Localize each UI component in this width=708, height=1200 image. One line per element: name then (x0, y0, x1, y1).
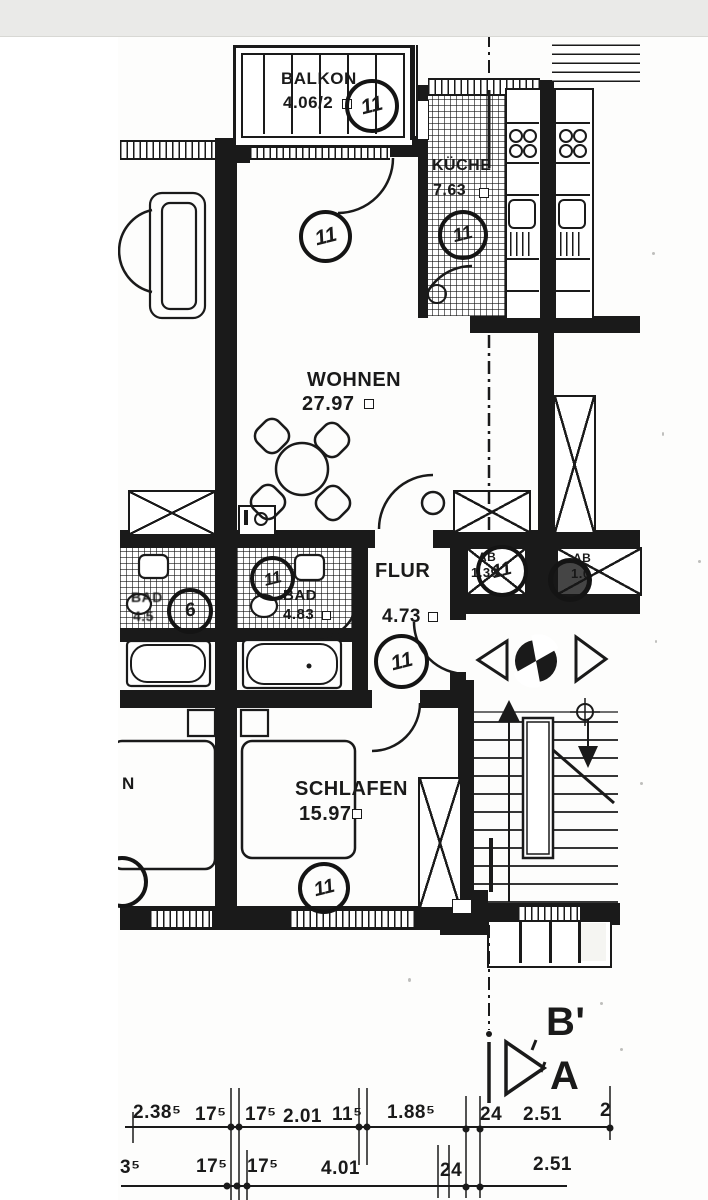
dim-row2-value: 4.01 (321, 1159, 360, 1178)
kitchen-fixture-circle (428, 285, 446, 303)
bathtub (243, 640, 341, 688)
dim-row1-value: 2 (600, 1101, 611, 1120)
sqm-icon (428, 612, 438, 622)
dim-row1-value: 17⁵ (245, 1105, 277, 1124)
door-arc-wohnen-flur (379, 475, 433, 529)
dim-row1-value: 2.01 (283, 1107, 322, 1126)
sideboard-basin-icon (254, 512, 268, 526)
bad-area: 4.83 (283, 607, 314, 622)
section-line-dot (486, 1031, 492, 1037)
triangle-right-icon (576, 637, 606, 681)
flur-area: 4.73 (382, 607, 421, 626)
floor-plan-scan: BALKON 4.06/2 KÜCHE 7.63 WOHNEN 27.97 FL… (0, 0, 708, 1200)
couch-neighbor-seat (162, 203, 196, 309)
stair-down-arrow-icon (578, 746, 598, 768)
dim-row1-value: 2.51 (523, 1105, 562, 1124)
scan-edge-strip (0, 0, 708, 37)
unit-circle-schlafen: 11 (298, 862, 350, 914)
sideboard-detail (244, 510, 248, 525)
tick-mark (541, 1062, 545, 1072)
dim-row2-value: 3⁵ (120, 1158, 141, 1177)
tick-mark (532, 1040, 536, 1050)
dim-dot (463, 1184, 470, 1191)
dim-row1-value: 2.38⁵ (133, 1103, 181, 1122)
flur-label: FLUR (375, 561, 430, 581)
dim-dot (477, 1184, 484, 1191)
schlafen-area: 15.97 (299, 804, 352, 824)
section-letter-b: B' (546, 1002, 585, 1042)
dim-row1-value: 11⁵ (332, 1105, 363, 1124)
dim-row2-value: 17⁵ (247, 1157, 279, 1176)
armchair-neighbor (119, 210, 152, 292)
triangle-left-icon (478, 641, 507, 679)
bed-neighbor (112, 741, 215, 869)
section-letter-a: A (550, 1056, 579, 1096)
balkon-area: 4.06/2 (283, 94, 333, 111)
door-arc-flur-schlafen (372, 703, 420, 751)
page-margin (0, 36, 118, 1200)
kueche-area: 7.63 (433, 183, 466, 199)
balkon-label: BALKON (281, 70, 357, 87)
wohnen-label: WOHNEN (307, 370, 401, 390)
stair-up-arrow-icon (498, 700, 520, 722)
bad-neighbor-area: 4.5 (133, 609, 154, 623)
unit-circle-kueche: 11 (438, 210, 488, 260)
survey-point-icon (505, 627, 566, 694)
entry-detail (452, 899, 472, 914)
dim-dot (228, 1124, 235, 1131)
schlafen-label: SCHLAFEN (295, 779, 408, 799)
door-arc-balkon (338, 158, 393, 213)
sqm-icon (352, 809, 362, 819)
dim-row2-value: 24 (440, 1161, 462, 1180)
kueche-label: KÜCHE (432, 158, 491, 174)
chair (311, 419, 353, 461)
dim-dot (607, 1125, 614, 1132)
dim-dot (477, 1126, 484, 1133)
wohnen-area: 27.97 (302, 394, 355, 414)
dim-row2-value: 17⁵ (196, 1157, 228, 1176)
dim-row1-value: 17⁵ (195, 1105, 227, 1124)
unit-circle-abstell1: 11 (476, 545, 528, 597)
dim-dot (224, 1183, 231, 1190)
unit-circle-smudge (548, 558, 592, 602)
unit-circle-wohnen: 11 (299, 210, 352, 263)
unit-circle-balkon: 11 (345, 79, 399, 133)
dim-row1-value: 24 (480, 1105, 502, 1124)
nightstand (241, 710, 268, 736)
bad-neighbor-label: BAD (131, 590, 163, 604)
sqm-icon (479, 188, 489, 198)
washbasin (295, 555, 324, 580)
schlafen-neighbor-partial-label: N (122, 775, 135, 792)
sqm-icon (322, 611, 331, 620)
unit-circle-bad: 11 (250, 556, 295, 601)
chair (251, 415, 293, 457)
dim-dot (244, 1183, 251, 1190)
dim-dot (234, 1183, 241, 1190)
stair-detail-bar (489, 838, 493, 892)
washbasin-neighbor (139, 555, 168, 578)
section-arrow-triangle (506, 1042, 544, 1094)
unit-circle-bad-neighbor: 6 (167, 588, 213, 634)
bathtub-drain (307, 664, 312, 669)
nightstand (188, 710, 215, 736)
dim-dot (236, 1124, 243, 1131)
dim-row2-value: 2.51 (533, 1155, 572, 1174)
unit-circle-flur: 11 (374, 634, 429, 689)
dim-row1-value: 1.88⁵ (387, 1103, 435, 1122)
dim-dot (364, 1124, 371, 1131)
sqm-icon (364, 399, 374, 409)
dim-dot (463, 1126, 470, 1133)
door-pivot-circle (422, 492, 444, 514)
